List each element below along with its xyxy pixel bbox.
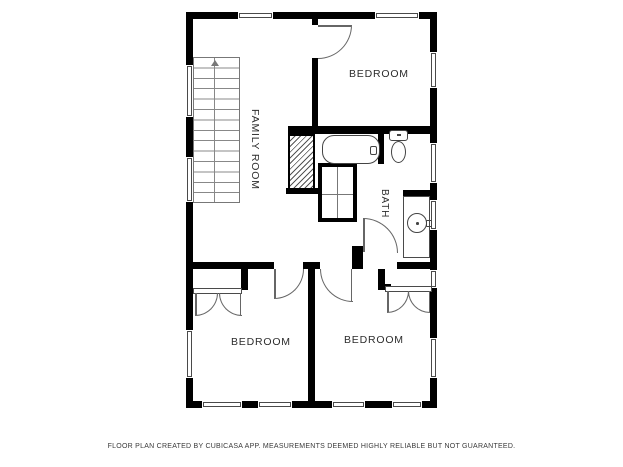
wall (241, 269, 248, 290)
chimney-hatch-icon (288, 134, 315, 190)
wall (308, 269, 315, 401)
room-label-family-room: FAMILY ROOM (249, 109, 261, 190)
toilet-flush-icon (397, 134, 401, 136)
toilet-bowl-icon (391, 141, 406, 163)
door-arc (320, 269, 353, 302)
staircase (193, 57, 240, 203)
room-label-bath: BATH (379, 189, 390, 218)
vanity-counter (403, 196, 430, 258)
window (430, 338, 437, 378)
bathtub-faucet-icon (370, 146, 377, 155)
toilet-icon (389, 130, 408, 141)
linen-closet (318, 163, 357, 222)
door-arc (274, 269, 304, 299)
window (238, 12, 273, 19)
closet-door-arc (387, 291, 409, 313)
window (258, 401, 292, 408)
sink-drain-icon (416, 222, 419, 225)
stairs-up-arrow-icon (211, 60, 219, 66)
window (332, 401, 365, 408)
wall (186, 262, 274, 269)
wall (352, 246, 363, 269)
footer-disclaimer: FLOOR PLAN CREATED BY CUBICASA APP. MEAS… (0, 443, 623, 450)
room-label-bedroom-bottom-left: BEDROOM (231, 336, 291, 348)
staircase-divider (214, 58, 215, 202)
closet-door-arc (408, 291, 430, 313)
window (392, 401, 422, 408)
window (202, 401, 242, 408)
wall (288, 126, 430, 134)
bathtub-icon (322, 135, 380, 164)
room-label-bedroom-top: BEDROOM (349, 68, 409, 80)
floor-plan: FAMILY ROOM BEDROOM BATH BEDROOM BEDROOM (186, 12, 437, 408)
window (186, 330, 193, 378)
door-arc (363, 218, 398, 253)
window (430, 52, 437, 88)
sink-tap-icon (426, 220, 432, 227)
floor-plan-screen: FAMILY ROOM BEDROOM BATH BEDROOM BEDROOM… (0, 0, 623, 467)
window (186, 65, 193, 117)
closet-door-arc (219, 293, 242, 316)
closet-door-arc (195, 293, 218, 316)
wall (397, 262, 437, 269)
wall (303, 262, 320, 269)
door-arc (318, 25, 352, 59)
room-label-bedroom-bottom-right: BEDROOM (344, 334, 404, 346)
window (430, 143, 437, 183)
window (375, 12, 419, 19)
wall (312, 58, 318, 128)
window (186, 157, 193, 202)
closet-shelf-line (337, 167, 338, 218)
